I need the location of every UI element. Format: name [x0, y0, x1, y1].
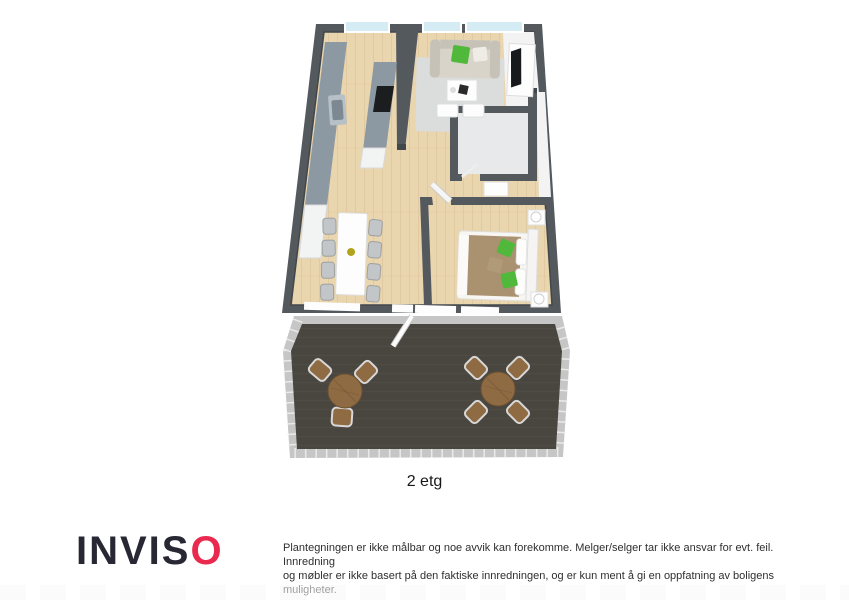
living-window [423, 21, 461, 32]
terrace-chair [331, 407, 352, 426]
disclaimer-line-1: Plantegningen er ikke målbar og noe avvi… [283, 541, 828, 569]
dining-chair [366, 285, 380, 302]
terrace [283, 316, 570, 458]
dining-chair [322, 240, 335, 256]
coffee-table-item [458, 84, 469, 95]
floorplan-page: 2 etg INVISO Plantegningen er ikke målba… [0, 0, 849, 600]
bathroom-bottom-wall-a [450, 174, 462, 181]
green-pillow [451, 45, 470, 64]
sofa [430, 39, 501, 78]
dining-chair [321, 284, 334, 300]
wall-end-cap [397, 144, 406, 150]
living-window [466, 21, 523, 32]
terrace-window [415, 305, 456, 314]
ottoman [463, 104, 484, 117]
logo-accent-o: O [190, 529, 223, 573]
brown-pillow [487, 257, 504, 274]
bed-pillow [516, 239, 527, 265]
lamp [534, 294, 544, 304]
dining-chair [323, 218, 336, 234]
tv [509, 48, 523, 89]
bottom-faint-strip [0, 585, 849, 600]
dining-chair [367, 263, 381, 280]
dining-chair [321, 262, 334, 278]
dining-chair [367, 241, 381, 258]
logo-text-main: INVIS [76, 529, 190, 573]
floor-plan-svg [0, 0, 849, 600]
inviso-logo: INVISO [76, 529, 224, 574]
hall-bench [484, 182, 508, 196]
apartment [282, 15, 561, 346]
kitchen-window [345, 21, 389, 32]
bedroom-top-wall [451, 197, 547, 205]
bathroom-floor [458, 113, 528, 174]
bathroom-bottom-wall-b [480, 174, 536, 181]
lamp [531, 212, 541, 222]
terrace-window [304, 302, 360, 312]
tv-bench [507, 43, 536, 96]
floor-label: 2 etg [0, 473, 849, 491]
windows-top [342, 15, 526, 32]
terrace-window [461, 306, 499, 315]
headboard [526, 229, 539, 301]
island-cabinet-white [360, 148, 386, 168]
dining-chair [368, 219, 382, 236]
ottoman [437, 104, 458, 117]
coffee-table-dish [450, 87, 456, 93]
bathroom-right-wall [528, 88, 537, 181]
bed [457, 227, 538, 302]
kitchen-sink [328, 94, 347, 125]
terrace-door-opening [392, 304, 413, 313]
